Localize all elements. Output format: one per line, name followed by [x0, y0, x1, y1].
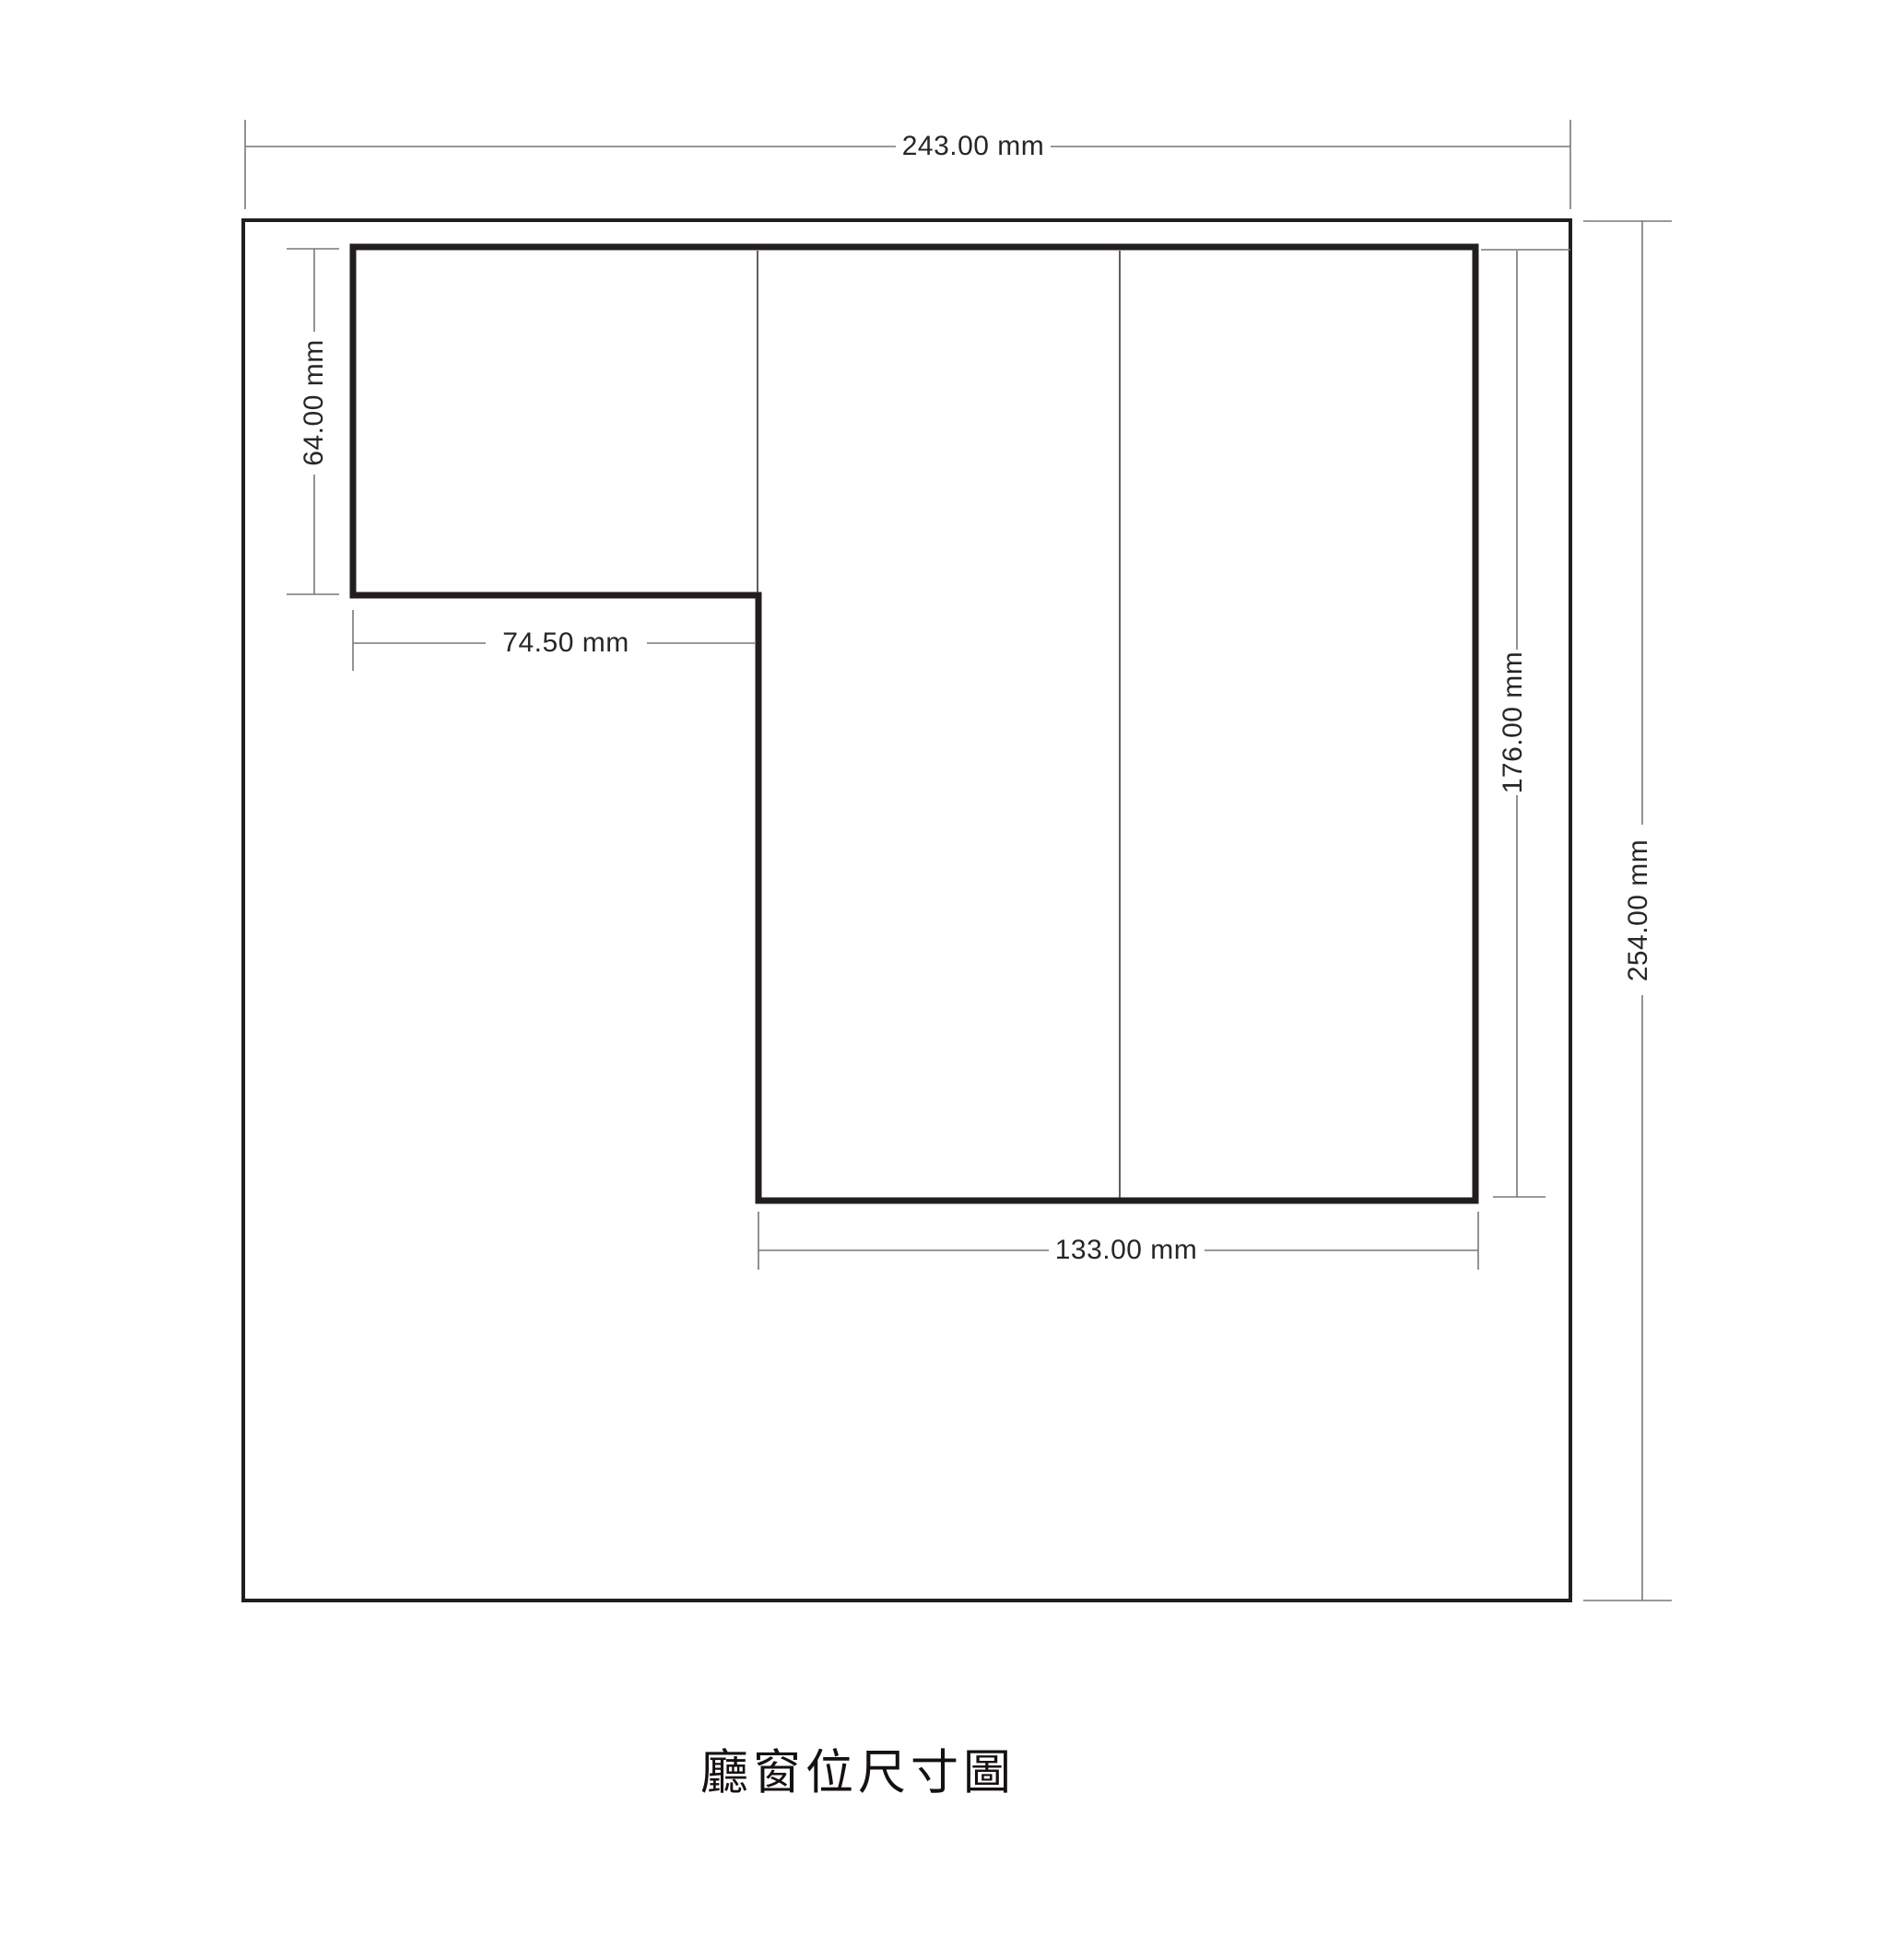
dim-label-bottom-section-width: 133.00 mm: [1055, 1237, 1198, 1264]
drawing-canvas: 243.00 mm 64.00 mm 74.50 mm 176.00 mm 25…: [0, 0, 1904, 1958]
drawing-title: 廳窗位尺寸圖: [700, 1734, 1016, 1803]
dim-label-right-section-height: 176.00 mm: [1499, 651, 1527, 794]
dim-label-overall-height: 254.00 mm: [1625, 839, 1652, 982]
window-area-outline: [353, 247, 1475, 1201]
floor-plan-drawing: [0, 0, 1904, 1958]
dim-label-left-section-height: 64.00 mm: [300, 339, 328, 465]
dim-label-left-section-width: 74.50 mm: [502, 629, 629, 657]
dim-label-overall-width: 243.00 mm: [902, 133, 1045, 160]
outer-boundary: [243, 220, 1570, 1600]
